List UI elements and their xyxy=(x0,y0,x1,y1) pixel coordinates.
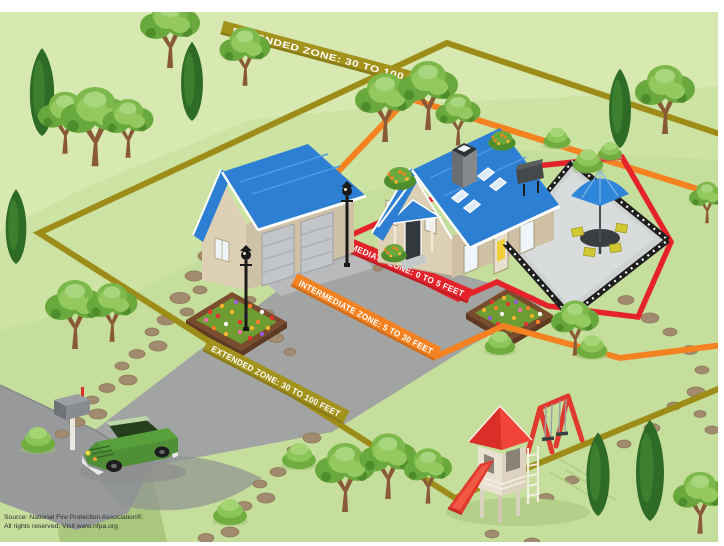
source-line-1: Source: National Fire Protection Associa… xyxy=(4,513,144,521)
source-line-2: All rights reserved. Visit www.nfpa.org xyxy=(4,523,118,530)
scene-svg: EXTENDED ZONE: 30 TO 100 FEET EXTENDED Z… xyxy=(0,0,724,546)
chimney xyxy=(452,143,477,188)
defensible-space-illustration: EXTENDED ZONE: 30 TO 100 FEET EXTENDED Z… xyxy=(0,0,724,546)
